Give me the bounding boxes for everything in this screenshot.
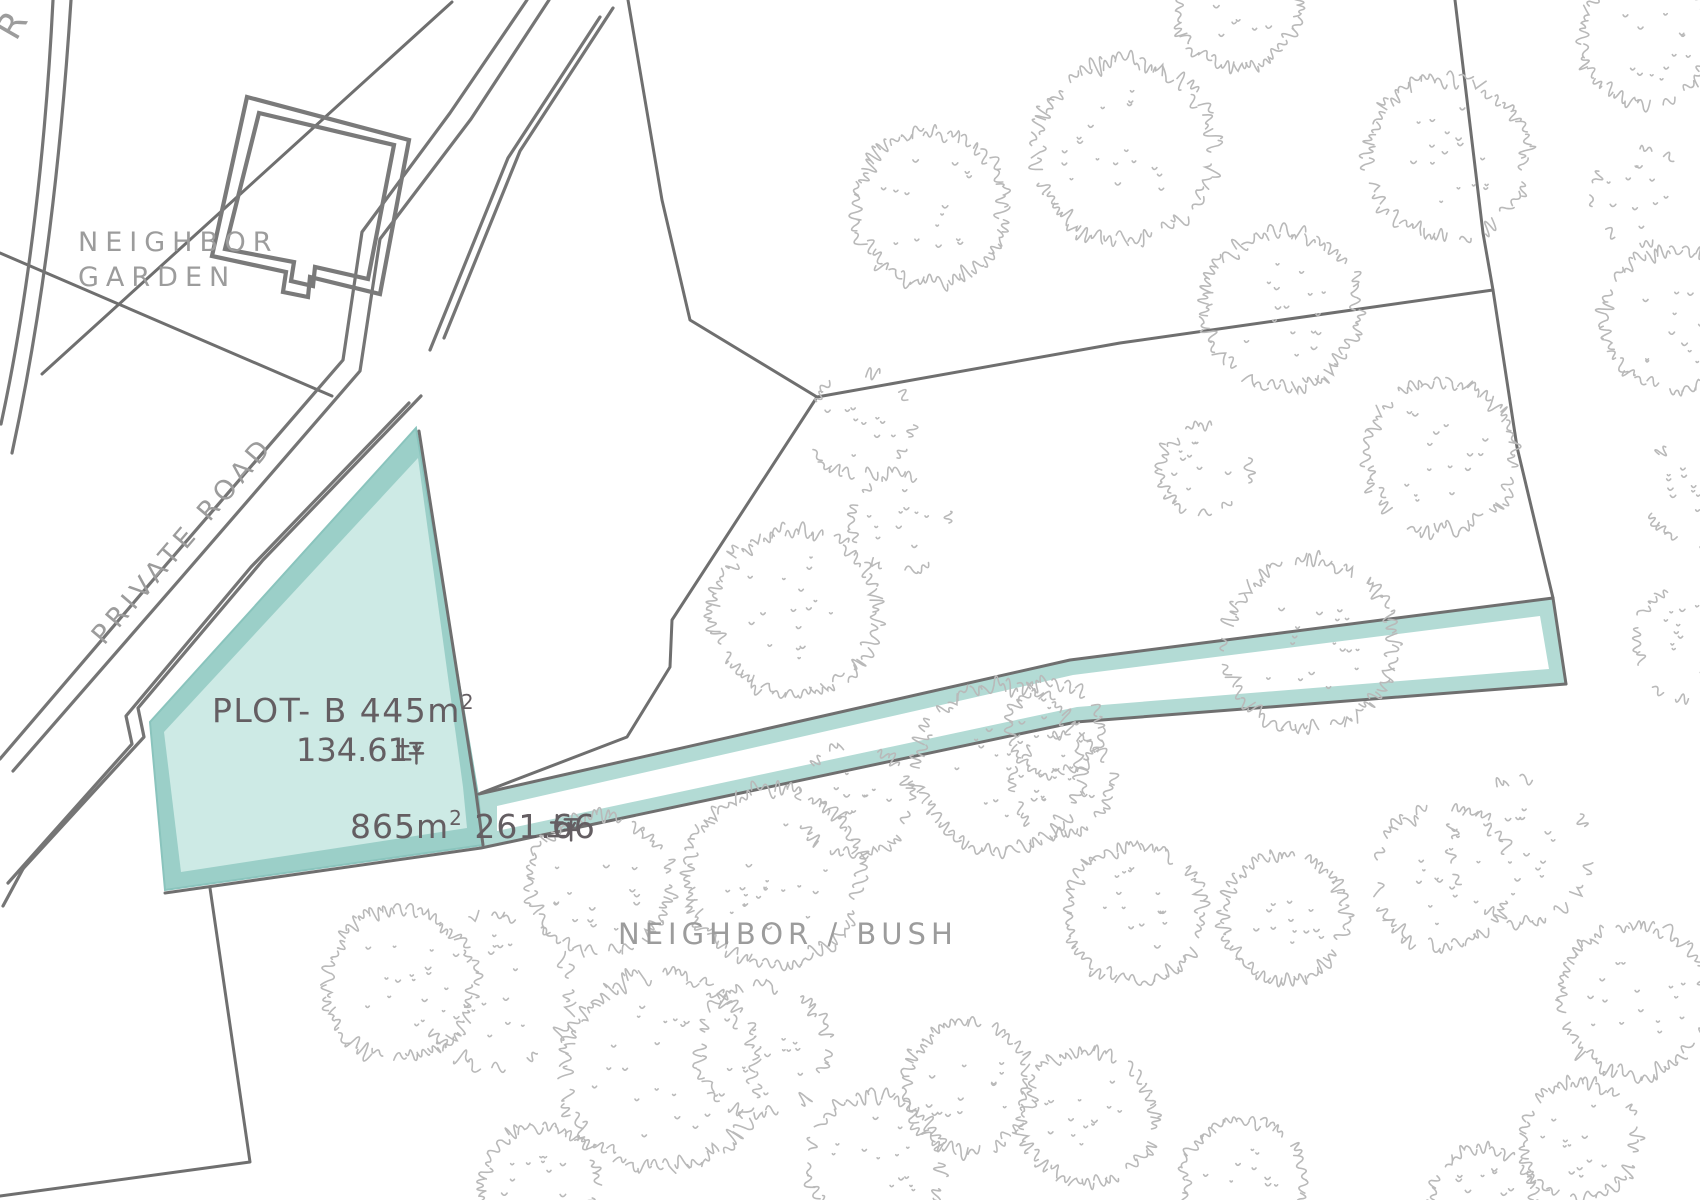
road-label-r: R [0,4,36,46]
tree-sketch [1633,581,1700,704]
road-edge [1,0,53,424]
plot-b-label-main: PLOT- B 445m [212,691,461,730]
labels-layer: R NEIGHBOR GARDEN PRIVATE ROAD PLOT- B 4… [0,4,958,951]
trees-layer [321,0,1700,1200]
tree-sketch [1178,1117,1307,1200]
tree-sketch [901,1017,1038,1160]
tree-sketch [1446,774,1593,929]
tree-sketch [1596,245,1700,396]
building-footprint [212,97,409,297]
tree-sketch [1198,223,1366,393]
property-lines-layer [0,0,1566,1196]
tree-sketch [1360,377,1521,539]
tree-sketch [1029,51,1223,247]
tree-sketch [849,125,1010,291]
tree-sketch [693,980,833,1120]
tree-sketch [1590,145,1674,247]
tree-sketch [477,1122,602,1200]
tree-sketch [1576,0,1700,112]
property-line [817,290,1493,397]
site-plan-canvas: R NEIGHBOR GARDEN PRIVATE ROAD PLOT- B 4… [0,0,1700,1200]
road-end-cap [3,867,24,906]
property-line [628,0,817,397]
neighbor-bush-label: NEIGHBOR / BUSH [618,917,958,951]
property-line [0,888,250,1196]
plot-b-label: PLOT- B 445m2 [212,690,475,730]
property-line [42,2,452,374]
building-outline-inner [225,113,394,286]
strip-label: 865m2 261.66 [350,806,596,846]
strip-label-sup: 2 [449,806,463,830]
tree-sketch [813,368,918,480]
neighbor-garden-label-line2: GARDEN [78,262,236,293]
strip-tsubo-value: 261.66 [463,807,596,846]
tree-sketch [1015,1045,1161,1189]
plot-b-label-sup: 2 [461,690,475,714]
tree-sketch [1649,432,1700,548]
tree-sketch [1155,421,1255,515]
tree-sketch [1374,804,1512,953]
tree-sketch [1556,921,1700,1083]
tree-sketch [321,904,483,1061]
tree-sketch [704,522,885,698]
tree-sketch [1519,1075,1644,1200]
strip-label-main: 865m [350,807,449,846]
tree-sketch [848,467,952,573]
tree-sketch [1064,841,1210,985]
plot-b-tsubo-value: 134.61 [296,731,408,769]
road-edge [12,0,71,453]
site-plan-svg: R NEIGHBOR GARDEN PRIVATE ROAD PLOT- B 4… [0,0,1700,1200]
tree-sketch [1216,850,1354,987]
neighbor-garden-label-line1: NEIGHBOR [78,227,279,258]
tree-sketch [1174,0,1305,74]
tree-sketch [1359,71,1535,242]
